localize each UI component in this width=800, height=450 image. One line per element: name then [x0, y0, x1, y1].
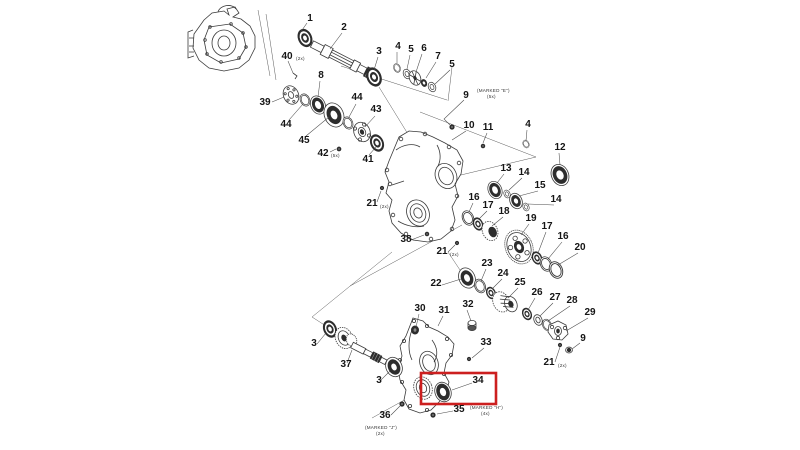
callout-9b: 9 — [580, 333, 586, 344]
note-42-qty: (5x) — [331, 153, 340, 158]
callout-22: 22 — [430, 278, 442, 289]
rear-case-half — [385, 131, 463, 242]
callout-36: 36 — [379, 410, 391, 421]
note-21c-qty: (2x) — [558, 363, 567, 368]
callout-25: 25 — [514, 277, 526, 288]
callout-32: 32 — [462, 299, 474, 310]
callout-23: 23 — [481, 258, 493, 269]
callout-19: 19 — [525, 213, 537, 224]
note-40-qty: (2x) — [296, 56, 305, 61]
callout-29: 29 — [584, 307, 596, 318]
callout-28: 28 — [566, 295, 578, 306]
note-36-qty: (2x) — [376, 431, 385, 436]
callout-44b: 44 — [351, 92, 363, 103]
callout-38: 38 — [400, 234, 412, 245]
seal-12 — [548, 161, 572, 188]
callout-10: 10 — [463, 120, 475, 131]
flange-29 — [548, 321, 568, 340]
clip-40 — [293, 73, 297, 79]
callout-41: 41 — [362, 154, 374, 165]
note-35-marked: (MARKED "H") — [470, 405, 503, 410]
callout-42: 42 — [317, 148, 329, 159]
callout-14: 14 — [518, 167, 530, 178]
exploded-diagram: 1 2 40 3 4 5 6 7 5 8 39 44 45 42 44 43 4… — [0, 0, 800, 450]
callout-35: 35 — [453, 404, 465, 415]
note-9-qty: (5x) — [487, 94, 496, 99]
callout-11: 11 — [483, 122, 494, 133]
callout-16: 16 — [468, 192, 480, 203]
plug-30 — [411, 326, 419, 335]
flange-39 — [280, 83, 301, 106]
callout-44: 44 — [280, 119, 292, 130]
callout-3b: 3 — [311, 338, 317, 349]
input-shim-gear-set — [392, 63, 437, 93]
idler-shaft-assembly — [320, 318, 405, 379]
callout-21c: 21 — [543, 357, 555, 368]
callout-9: 9 — [463, 90, 469, 101]
callout-16b: 16 — [557, 231, 569, 242]
callout-13: 13 — [500, 163, 512, 174]
callout-3c: 3 — [376, 375, 382, 386]
callout-3: 3 — [376, 46, 382, 57]
note-9-marked: (MARKED "E") — [477, 88, 510, 93]
callout-4: 4 — [395, 41, 401, 52]
plug-32 — [468, 320, 476, 330]
main-gear-19 — [500, 226, 539, 269]
callout-37: 37 — [340, 359, 352, 370]
callout-7: 7 — [435, 51, 441, 62]
callout-17: 17 — [482, 200, 494, 211]
callout-4b: 4 — [525, 119, 531, 130]
front-case-half — [398, 318, 476, 418]
callout-8: 8 — [318, 70, 324, 81]
exploded-diagram-page: 1 2 40 3 4 5 6 7 5 8 39 44 45 42 44 43 4… — [0, 0, 800, 450]
callout-21b: 21 — [436, 246, 448, 257]
callout-30: 30 — [414, 303, 426, 314]
callout-27: 27 — [549, 292, 561, 303]
callout-45: 45 — [298, 135, 310, 146]
note-21b-qty: (2x) — [450, 252, 459, 257]
callout-17b: 17 — [541, 221, 553, 232]
output-gear-train — [460, 139, 572, 280]
callout-34: 34 — [472, 375, 484, 386]
note-36-marked: (MARKED "J") — [365, 425, 397, 430]
callout-20: 20 — [574, 242, 586, 253]
callout-12: 12 — [554, 142, 566, 153]
note-35-qty: (4x) — [481, 411, 490, 416]
callout-39: 39 — [259, 97, 271, 108]
front-housing-reference — [188, 5, 255, 71]
callout-31: 31 — [438, 305, 450, 316]
callout-2: 2 — [341, 22, 347, 33]
callout-14b: 14 — [550, 194, 562, 205]
callout-15: 15 — [534, 180, 546, 191]
callout-6: 6 — [421, 43, 427, 54]
callout-18: 18 — [498, 206, 510, 217]
callout-24: 24 — [497, 268, 509, 279]
callout-26: 26 — [531, 287, 543, 298]
callout-33: 33 — [480, 337, 492, 348]
note-21-qty: (2x) — [380, 204, 389, 209]
callout-40: 40 — [281, 51, 293, 62]
idler-shaft — [350, 341, 387, 365]
callout-21: 21 — [366, 198, 378, 209]
callout-5: 5 — [408, 44, 414, 55]
bolt-9b — [566, 347, 573, 353]
callout-43: 43 — [370, 104, 382, 115]
callout-5b: 5 — [449, 59, 455, 70]
callout-1: 1 — [307, 13, 313, 24]
